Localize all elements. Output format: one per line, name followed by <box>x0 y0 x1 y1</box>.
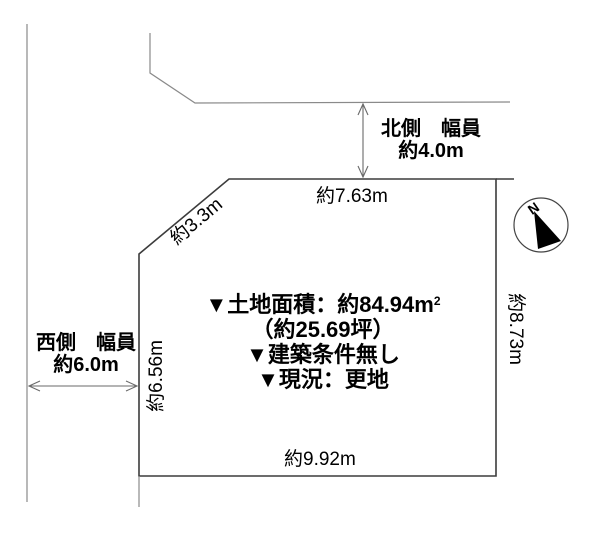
north-road-side-text: 北側 幅員 <box>356 118 506 140</box>
land-plot-diagram: N 北側 幅員 約4.0m 西側 幅員 約6.0m 約7.63m 約3.3m 約… <box>0 0 600 534</box>
west-road-label: 西側 幅員 約6.0m <box>24 332 148 376</box>
building-condition-line: ▼建築条件無し <box>173 342 473 367</box>
property-info-block: ▼土地面積：約84.94m2 （約25.69坪） ▼建築条件無し ▼現況：更地 <box>173 289 473 392</box>
north-road-edge-line <box>150 33 510 103</box>
north-road-label: 北側 幅員 約4.0m <box>356 118 506 162</box>
dimension-right: 約8.73m <box>505 289 525 369</box>
north-road-width-text: 約4.0m <box>356 140 506 162</box>
west-road-side-text: 西側 幅員 <box>24 332 148 354</box>
land-area-line: ▼土地面積：約84.94m2 <box>173 289 473 317</box>
west-width-arrow <box>29 381 137 391</box>
land-area-text: ▼土地面積：約84.94m <box>205 292 433 317</box>
dimension-left: 約6.56m <box>147 336 167 416</box>
compass: N <box>514 198 568 252</box>
west-road-width-text: 約6.0m <box>24 354 148 376</box>
tsubo-line: （約25.69坪） <box>173 317 473 342</box>
dimension-bottom: 約9.92m <box>284 450 356 470</box>
dimension-top: 約7.63m <box>316 187 388 207</box>
current-status-line: ▼現況：更地 <box>173 367 473 392</box>
square-meter-superscript: 2 <box>434 294 441 308</box>
